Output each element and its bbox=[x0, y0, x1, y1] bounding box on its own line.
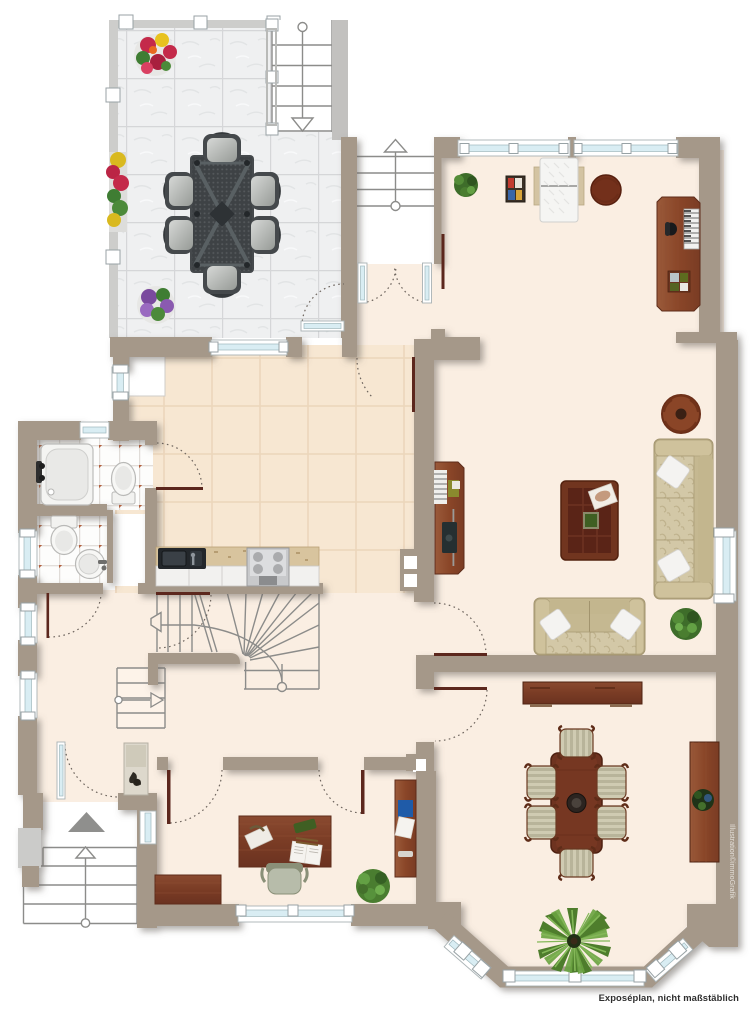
svg-text:Illustration©immoGrafik: Illustration©immoGrafik bbox=[728, 824, 737, 899]
svg-text:Exposéplan, nicht maßstäblich: Exposéplan, nicht maßstäblich bbox=[599, 992, 740, 1003]
